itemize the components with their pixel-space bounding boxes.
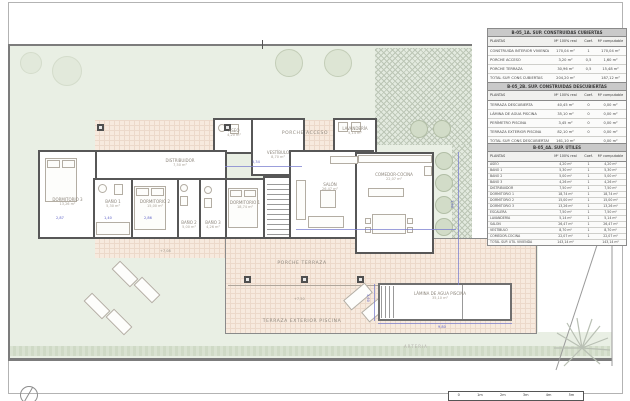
cell-computable: 0,00 m² [595, 128, 626, 136]
cell-coef: 1 [582, 192, 595, 197]
cell-real: 7,50 m² [549, 186, 582, 191]
table-row: TOTAL SUP. ÚTIL VIVIENDA 143,14 m² 143,1… [488, 239, 626, 245]
cell-planta: BAÑO 3 [488, 180, 549, 185]
room-label-distribuidor: DISTRIBUIDOR 7,50 m² [150, 158, 210, 168]
boundary-tick [262, 40, 263, 49]
cell-computable: 5,14 m² [595, 216, 626, 221]
pillow [47, 160, 60, 168]
cell-planta: ESCALERA [488, 210, 549, 215]
table-title: B-05_4A. SUP. ÚTILES [488, 144, 626, 152]
room-label-dormitorio-2: DORMITORIO 2 15,00 m² [133, 199, 177, 209]
cell-real: 35,10 m² [549, 110, 582, 118]
pillow [244, 190, 256, 197]
cell-real: 15,00 m² [549, 198, 582, 203]
room-label-comedor-cocina: COMEDOR-COCINA 22,07 m² [358, 172, 430, 182]
chair [365, 218, 371, 224]
cell-coef: 0,5 [582, 65, 595, 73]
cell-real: 13,26 m² [549, 204, 582, 209]
table-row: TERRAZA EXTERIOR PISCINA 82,10 m² 0 0,00… [488, 127, 626, 136]
room-area: 26,47 m² [300, 187, 360, 192]
toilet [180, 196, 188, 206]
cell-planta: DORMITORIO 3 [488, 204, 549, 209]
col-coef: Coef. [582, 37, 595, 46]
dimension-line [374, 284, 375, 321]
cell-coef: 0 [582, 119, 595, 127]
tree-icon [435, 152, 453, 170]
tv-cabinet [330, 156, 358, 164]
table-row: BAÑO 3 4,26 m² 1 4,26 m² [488, 179, 626, 185]
tree-icon [275, 49, 303, 77]
cell-coef: 1 [582, 168, 595, 173]
column-icon [357, 276, 364, 283]
cell-real: 5,30 m² [549, 168, 582, 173]
cell-computable: 5,30 m² [595, 168, 626, 173]
cell-real: 3,45 m² [549, 119, 582, 127]
dimension-text: 5,34 [252, 160, 260, 164]
chair [407, 227, 413, 233]
dimension-text: 2,87 [56, 216, 64, 220]
table-body: CONSTRUIDA INTERIOR VIVIENDA 170,04 m² 1… [488, 47, 626, 82]
cell-computable: 7,50 m² [595, 210, 626, 215]
room-label-dormitorio-3: DORMITORIO 3 13,26 m² [40, 197, 95, 207]
shower [96, 222, 130, 235]
label-porche-acceso: PORCHE ACCESO [240, 131, 370, 136]
room-area: 5,00 m² [177, 225, 201, 230]
table-row: PORCHE TERRAZA 30,96 m² 0,5 15,48 m² [488, 64, 626, 73]
cell-computable: 0,00 m² [595, 119, 626, 127]
pool-area: 35,10 m² [385, 296, 495, 301]
room-area: 22,07 m² [358, 177, 430, 182]
dimension-line [225, 166, 302, 167]
scale-tick-label: 2m [500, 393, 506, 400]
col-real: M² 100% real [549, 152, 582, 161]
cell-computable: 7,50 m² [595, 186, 626, 191]
cell-planta: DORMITORIO 2 [488, 198, 549, 203]
dimension-text: 9,80 [438, 325, 446, 329]
table-row: TOTAL SUP. CONS CUBIERTAS 204,20 m² 187,… [488, 73, 626, 82]
cell-planta: LÁMINA DE AGUA PISCINA [488, 110, 549, 118]
cell-coef: 1 [582, 222, 595, 227]
cell-real: 26,47 m² [549, 222, 582, 227]
cell-coef: 0 [582, 101, 595, 109]
room-comedor-cocina [355, 152, 434, 254]
cell-computable: 143,14 m² [595, 240, 626, 245]
room-label-vestibulo: VESTÍBULO 8,70 m² [251, 150, 305, 160]
cell-real: 7,50 m² [549, 210, 582, 215]
cell-planta: COMEDOR-COCINA [488, 234, 549, 239]
pillow [62, 160, 75, 168]
room-label-salon: SALÓN 26,47 m² [300, 182, 360, 192]
table-header-row: PLANTAS M² 100% real Coef. M² computable [488, 152, 626, 162]
side-path-paving [95, 237, 225, 258]
pillow [230, 190, 242, 197]
cell-real: 3,20 m² [549, 56, 582, 64]
dining-table [372, 214, 406, 234]
cell-computable: 4,20 m² [595, 162, 626, 167]
chair [365, 227, 371, 233]
table-row: ESCALERA 7,50 m² 1 7,50 m² [488, 209, 626, 215]
room-area: 7,50 m² [150, 163, 210, 168]
cell-computable: 1,60 m² [595, 56, 626, 64]
cell-real: 4,20 m² [549, 162, 582, 167]
room-label-bano-1: BAÑO 1 5,30 m² [95, 199, 131, 209]
level-mark: +7,50 [294, 297, 305, 301]
cell-real: 22,07 m² [549, 234, 582, 239]
cell-computable: 15,00 m² [595, 198, 626, 203]
coffee-table [320, 190, 336, 208]
pillow [151, 188, 164, 196]
cell-coef [582, 74, 595, 82]
cell-coef: 1 [582, 180, 595, 185]
cell-planta: TOTAL SUP. CONS CUBIERTAS [488, 74, 549, 82]
table-row: VESTÍBULO 8,70 m² 1 8,70 m² [488, 227, 626, 233]
cell-coef: 1 [582, 210, 595, 215]
table-row: DORMITORIO 3 13,26 m² 1 13,26 m² [488, 203, 626, 209]
cell-real: 82,10 m² [549, 128, 582, 136]
scale-bar: 01m2m3m4m5m [448, 391, 584, 401]
site-boundary-west [8, 44, 10, 360]
cell-planta: ASEO [488, 162, 549, 167]
scale-tick-label: 1m [477, 393, 483, 400]
cell-computable: 26,47 m² [595, 222, 626, 227]
table-row: LÁMINA DE AGUA PISCINA 35,10 m² 0 0,00 m… [488, 109, 626, 118]
table-row: ASEO 4,20 m² 1 4,20 m² [488, 162, 626, 167]
table-row: COMEDOR-COCINA 22,07 m² 1 22,07 m² [488, 233, 626, 239]
cell-planta: TERRAZA DESCUBIERTA [488, 101, 549, 109]
sink [98, 184, 107, 193]
cell-planta: PORCHE ACCESO [488, 56, 549, 64]
cell-planta: PERÍMETRO PISCINA [488, 119, 549, 127]
toilet [204, 198, 212, 208]
scale-tick-label: 0 [458, 393, 460, 400]
table-title: B-05_2B. SUP. CONSTRUIDAS DESCUBIERTAS [488, 83, 626, 91]
dimension-line [378, 323, 512, 324]
cell-real: 204,20 m² [549, 74, 582, 82]
column-icon [97, 124, 104, 131]
cell-computable: 15,48 m² [595, 65, 626, 73]
room-area: 18,74 m² [225, 205, 265, 210]
cell-coef: 0 [582, 110, 595, 118]
cell-computable: 13,26 m² [595, 204, 626, 209]
cell-real: 143,14 m² [549, 240, 582, 245]
col-computable: M² computable [595, 91, 626, 100]
cell-computable: 187,12 m² [595, 74, 626, 82]
cell-coef: 1 [582, 174, 595, 179]
cell-computable: 5,00 m² [595, 174, 626, 179]
room-label-bano-3: BAÑO 3 4,26 m² [199, 220, 227, 230]
column-icon [301, 276, 308, 283]
table-row: SALÓN 26,47 m² 1 26,47 m² [488, 221, 626, 227]
cell-real: 4,26 m² [549, 180, 582, 185]
table-body: ASEO 4,20 m² 1 4,20 m² BAÑO 1 5,30 m² 1 … [488, 162, 626, 245]
level-mark: +7,08 [160, 249, 171, 253]
north-arrow-icon [20, 386, 38, 401]
label-porche-terraza: PORCHE TERRAZA [232, 261, 372, 266]
cell-planta: TOTAL SUP. ÚTIL VIVIENDA [488, 240, 549, 245]
cell-coef [582, 240, 595, 245]
cell-computable: 170,04 m² [595, 47, 626, 55]
scale-tick-label: 4m [546, 393, 552, 400]
cell-real: 40,45 m² [549, 101, 582, 109]
stairs [267, 180, 289, 235]
tree-icon [410, 120, 428, 138]
kitchen-counter [358, 155, 432, 163]
sink [204, 186, 212, 194]
cell-computable: 8,70 m² [595, 228, 626, 233]
site-boundary-north [8, 44, 472, 46]
table-row: DORMITORIO 2 15,00 m² 1 15,00 m² [488, 197, 626, 203]
col-coef: Coef. [582, 152, 595, 161]
cell-coef: 1 [582, 47, 595, 55]
room-area: 4,26 m² [199, 225, 227, 230]
swimming-pool [378, 283, 512, 321]
cell-planta: PORCHE TERRAZA [488, 65, 549, 73]
cell-coef: 0 [582, 128, 595, 136]
column-icon [244, 276, 251, 283]
dimension-line [296, 229, 456, 230]
cell-computable: 0,00 m² [595, 101, 626, 109]
cell-computable: 18,74 m² [595, 192, 626, 197]
sink [180, 184, 188, 192]
col-coef: Coef. [582, 91, 595, 100]
cell-coef: 1 [582, 234, 595, 239]
table-row: TERRAZA DESCUBIERTA 40,45 m² 0 0,00 m² [488, 101, 626, 109]
cell-planta: DORMITORIO 1 [488, 192, 549, 197]
table-row: DORMITORIO 1 18,74 m² 1 18,74 m² [488, 191, 626, 197]
chair [407, 218, 413, 224]
pillow [136, 188, 149, 196]
tree-icon [20, 52, 42, 74]
cell-coef: 0,5 [582, 56, 595, 64]
cell-planta: SALÓN [488, 222, 549, 227]
label-terraza-exterior: TERRAZA EXTERIOR PISCINA [232, 319, 372, 324]
table-row: CONSTRUIDA INTERIOR VIVIENDA 170,04 m² 1… [488, 47, 626, 55]
cell-planta: TERRAZA EXTERIOR PISCINA [488, 128, 549, 136]
table-title: B-05_1A. SUP. CONSTRUIDAS CUBIERTAS [488, 29, 626, 37]
cell-real: 8,70 m² [549, 228, 582, 233]
col-real: M² 100% real [549, 91, 582, 100]
cell-coef: 1 [582, 198, 595, 203]
col-computable: M² computable [595, 152, 626, 161]
room-label-dormitorio-1: DORMITORIO 1 18,74 m² [225, 200, 265, 210]
sofa [308, 216, 344, 228]
col-plantas: PLANTAS [488, 37, 549, 46]
cell-planta: CONSTRUIDA INTERIOR VIVIENDA [488, 47, 549, 55]
street-label: ARTERIA [404, 344, 428, 349]
scale-tick-label: 5m [569, 393, 575, 400]
col-real: M² 100% real [549, 37, 582, 46]
cell-real: 170,04 m² [549, 47, 582, 55]
table-header-row: PLANTAS M² 100% real Coef. M² computable [488, 91, 626, 101]
tree-icon [433, 120, 451, 138]
room-label-bano-2: BAÑO 2 5,00 m² [177, 220, 201, 230]
cell-coef: 1 [582, 204, 595, 209]
label-pool: LÁMINA DE AGUA PISCINA 35,10 m² [385, 291, 495, 301]
table-row: LAVANDERÍA 5,14 m² 1 5,14 m² [488, 215, 626, 221]
cell-coef: 1 [582, 186, 595, 191]
cell-planta: LAVANDERÍA [488, 216, 549, 221]
col-computable: M² computable [595, 37, 626, 46]
cell-computable: 0,00 m² [595, 110, 626, 118]
table-body: TERRAZA DESCUBIERTA 40,45 m² 0 0,00 m² L… [488, 101, 626, 145]
table-sup-construidas-cubiertas: B-05_1A. SUP. CONSTRUIDAS CUBIERTAS PLAN… [487, 28, 627, 83]
floor-plan-sheet: DORMITORIO 3 13,26 m² BAÑO 1 5,30 m² DOR… [0, 0, 630, 401]
room-area: 15,00 m² [133, 204, 177, 209]
cell-real: 5,14 m² [549, 216, 582, 221]
table-sup-construidas-descubiertas: B-05_2B. SUP. CONSTRUIDAS DESCUBIERTAS P… [487, 82, 627, 146]
dimension-text: 3,60 [366, 294, 370, 302]
tree-icon [435, 174, 453, 192]
table-row: PORCHE ACCESO 3,20 m² 0,5 1,60 m² [488, 55, 626, 64]
dimension-line [458, 152, 459, 285]
north-needle [24, 387, 33, 401]
room-area: 13,26 m² [40, 202, 95, 207]
table-row: DISTRIBUIDOR 7,50 m² 1 7,50 m² [488, 185, 626, 191]
tree-icon [52, 56, 82, 86]
table-row: BAÑO 1 5,30 m² 1 5,30 m² [488, 167, 626, 173]
col-plantas: PLANTAS [488, 91, 549, 100]
toilet [114, 184, 123, 195]
cell-planta: VESTÍBULO [488, 228, 549, 233]
cell-computable: 22,07 m² [595, 234, 626, 239]
tree-icon [324, 49, 352, 77]
dimension-text: 1,80 [450, 200, 454, 208]
scale-tick-label: 3m [523, 393, 529, 400]
cell-coef: 1 [582, 216, 595, 221]
table-row: BAÑO 2 5,00 m² 1 5,00 m² [488, 173, 626, 179]
cell-planta: BAÑO 1 [488, 168, 549, 173]
kitchen-island [368, 188, 404, 197]
table-header-row: PLANTAS M² 100% real Coef. M² computable [488, 37, 626, 47]
cell-coef: 1 [582, 228, 595, 233]
table-sup-utiles: B-05_4A. SUP. ÚTILES PLANTAS M² 100% rea… [487, 143, 627, 246]
col-plantas: PLANTAS [488, 152, 549, 161]
dimension-text: 1,40 [104, 216, 112, 220]
table-row: PERÍMETRO PISCINA 3,45 m² 0 0,00 m² [488, 118, 626, 127]
dimension-text: 2,86 [144, 216, 152, 220]
room-area: 5,30 m² [95, 204, 131, 209]
cell-real: 30,96 m² [549, 65, 582, 73]
cell-real: 5,00 m² [549, 174, 582, 179]
tree-icon [435, 218, 453, 236]
cell-planta: BAÑO 2 [488, 174, 549, 179]
cell-coef: 1 [582, 162, 595, 167]
cell-planta: DISTRIBUIDOR [488, 186, 549, 191]
cell-real: 18,74 m² [549, 192, 582, 197]
cell-computable: 4,26 m² [595, 180, 626, 185]
